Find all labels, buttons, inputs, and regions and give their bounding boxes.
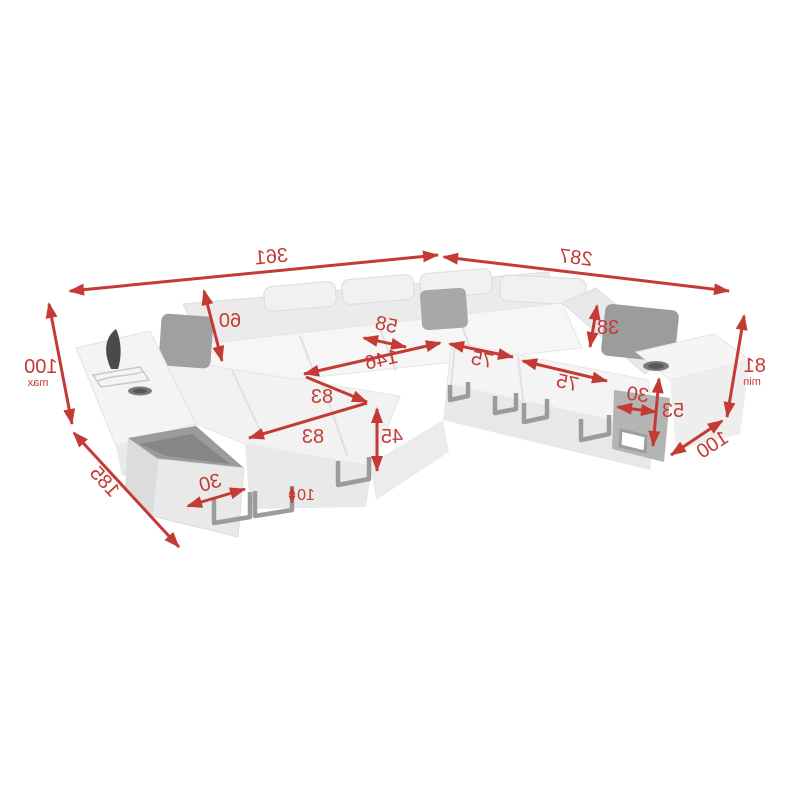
diagram-canvas: 361 287 100 max 185 60 58 146 [0, 0, 800, 800]
sofa-dimensions-diagram: 361 287 100 max 185 60 58 146 [0, 0, 800, 800]
cup-holder-right-inner [648, 363, 664, 369]
dimension-label: 53 [662, 400, 684, 422]
dimension-label: 185 [85, 462, 124, 501]
dimension-label: 60 [219, 310, 241, 332]
storage-compartment-front [152, 459, 244, 537]
dimension-label: 83 [311, 386, 333, 408]
dimension-label: 361 [254, 245, 289, 270]
dimension-label: 10 [297, 487, 315, 504]
dimension-label: 45 [381, 426, 403, 448]
dimension-label: 58 [373, 312, 399, 338]
dimension-height-left: 100 max [19, 304, 72, 424]
pillow-corner [420, 287, 469, 330]
dimension-label: 38 [597, 317, 619, 339]
pillow-left [158, 313, 214, 369]
dimension-label: 30 [625, 383, 650, 408]
dimension-label: 287 [558, 245, 594, 271]
dimension-label: 100 max [19, 356, 58, 389]
dimension-label: 83 [302, 426, 324, 448]
cup-holder-left-inner [133, 389, 147, 394]
dimension-label: 75 [469, 347, 495, 373]
